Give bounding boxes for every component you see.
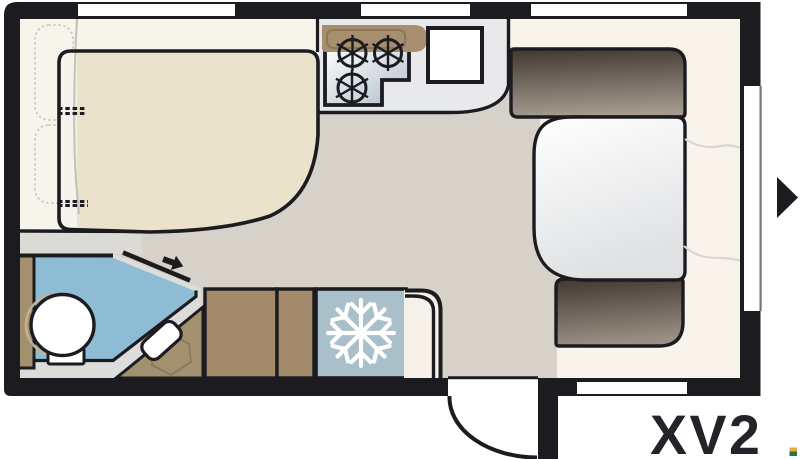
svg-text:XV2: XV2 [650, 404, 762, 459]
